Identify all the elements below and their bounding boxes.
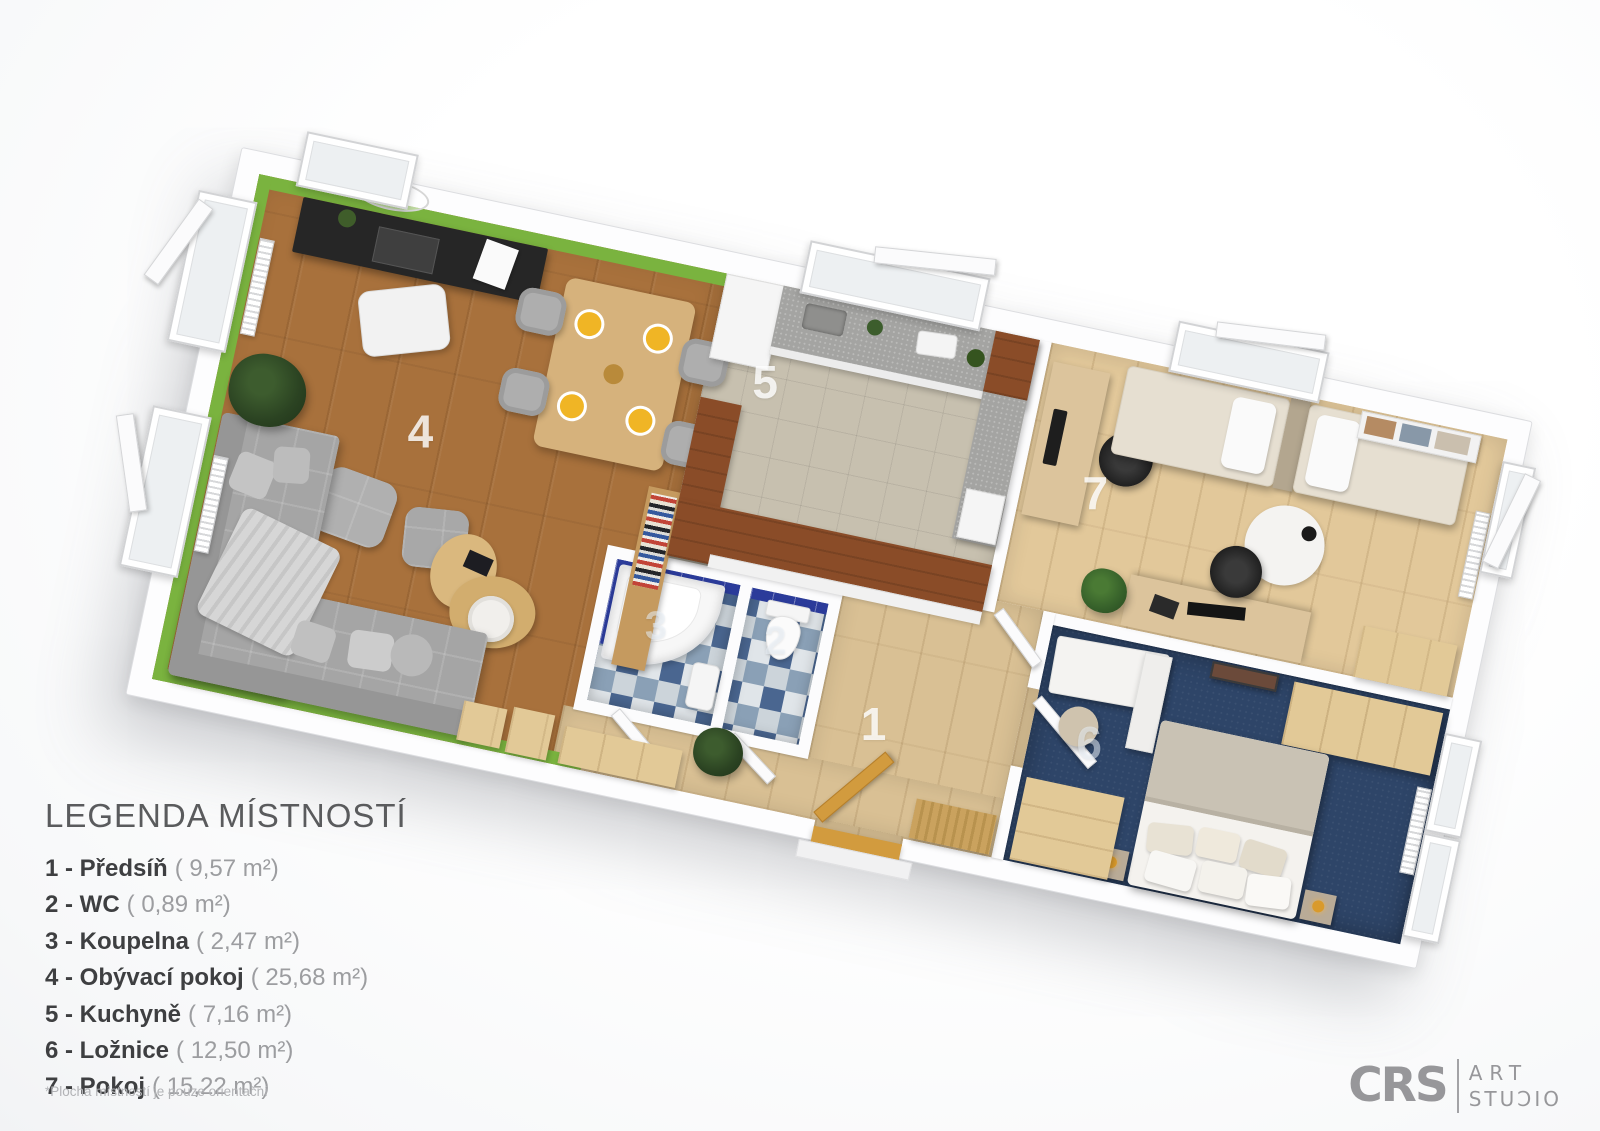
legend-footnote: *Plocha místností je pouze orientační xyxy=(45,1084,268,1099)
legend-room-label: 3 - Koupelna xyxy=(45,928,189,955)
legend-row: 5 - Kuchyně( 7,16 m²) xyxy=(45,997,407,1033)
legend-room-label: 6 - Ložnice xyxy=(45,1037,169,1064)
room-number-6: 6 xyxy=(1076,716,1102,770)
legend-room-area: ( 7,16 m²) xyxy=(188,1001,292,1028)
legend-room-area: ( 12,50 m²) xyxy=(176,1037,293,1064)
legend-room-area: ( 0,89 m²) xyxy=(127,891,231,918)
room-number-7: 7 xyxy=(1083,466,1109,520)
legend-room-area: ( 25,68 m²) xyxy=(251,964,368,991)
room-legend: LEGENDA MÍSTNOSTÍ 1 - Předsíň( 9,57 m²) … xyxy=(45,797,407,1106)
legend-title: LEGENDA MÍSTNOSTÍ xyxy=(45,797,407,835)
room-number-4: 4 xyxy=(408,404,434,458)
room-number-2: 2 xyxy=(764,619,786,664)
floor-plan-page: 4 5 3 2 1 6 7 LEGENDA MÍSTNOSTÍ 1 - Před… xyxy=(0,0,1600,1131)
sofa-pillow xyxy=(346,629,395,673)
legend-room-label: 2 - WC xyxy=(45,891,120,918)
bed-pillow xyxy=(1244,873,1292,910)
logo-line-art: ART xyxy=(1469,1060,1562,1086)
room-number-5: 5 xyxy=(752,355,778,409)
legend-row: 3 - Koupelna( 2,47 m²) xyxy=(45,924,407,960)
studio-logo: CRS ART STUƆIO xyxy=(1348,1058,1562,1113)
legend-row: 4 - Obývací pokoj( 25,68 m²) xyxy=(45,960,407,996)
logo-mark: CRS xyxy=(1348,1058,1447,1113)
legend-room-label: 5 - Kuchyně xyxy=(45,1001,181,1028)
legend-room-label: 4 - Obývací pokoj xyxy=(45,964,244,991)
legend-row: 1 - Předsíň( 9,57 m²) xyxy=(45,851,407,887)
legend-room-label: 1 - Předsíň xyxy=(45,855,168,882)
legend-rows: 1 - Předsíň( 9,57 m²) 2 - WC( 0,89 m²) 3… xyxy=(45,851,407,1106)
legend-room-area: ( 2,47 m²) xyxy=(196,928,300,955)
legend-row: 2 - WC( 0,89 m²) xyxy=(45,887,407,923)
room-number-3: 3 xyxy=(645,604,667,649)
legend-room-area: ( 9,57 m²) xyxy=(175,855,279,882)
logo-line-studio: STUƆIO xyxy=(1469,1086,1562,1112)
desk-chair xyxy=(357,283,451,358)
legend-row: 6 - Ložnice( 12,50 m²) xyxy=(45,1033,407,1069)
room-number-1: 1 xyxy=(861,697,887,751)
sofa-pillow xyxy=(272,446,310,484)
logo-divider xyxy=(1457,1059,1459,1113)
